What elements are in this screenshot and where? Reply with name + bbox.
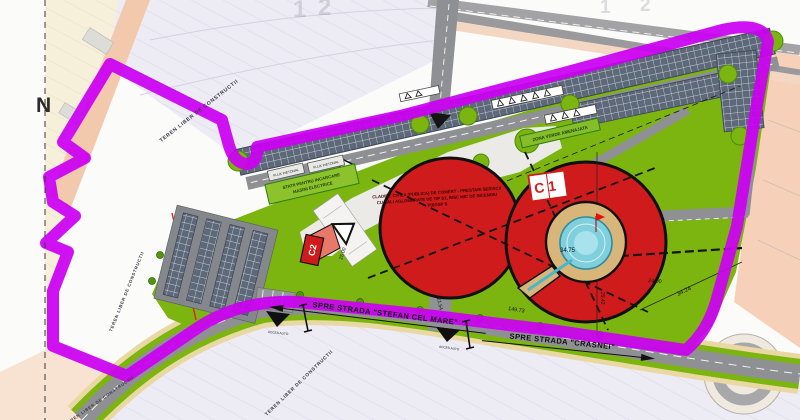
parcel-number: 2 [640,0,651,16]
parcel-number: 1 [293,0,306,23]
parcel-number: 2 [318,0,331,21]
building-c1-tag: C1 [528,171,567,202]
parcel-number: 1 [600,0,611,18]
site-plan-canvas: 1 2 1 2 [0,0,800,420]
site-plan-page: 1 2 1 2 [0,0,800,420]
dim-pool: 34.75 [560,248,576,254]
green-island [459,107,477,125]
dim-vert: 29.42 [599,292,605,305]
north-label: N [36,94,51,117]
dim-axis: 24.00 [648,278,662,285]
